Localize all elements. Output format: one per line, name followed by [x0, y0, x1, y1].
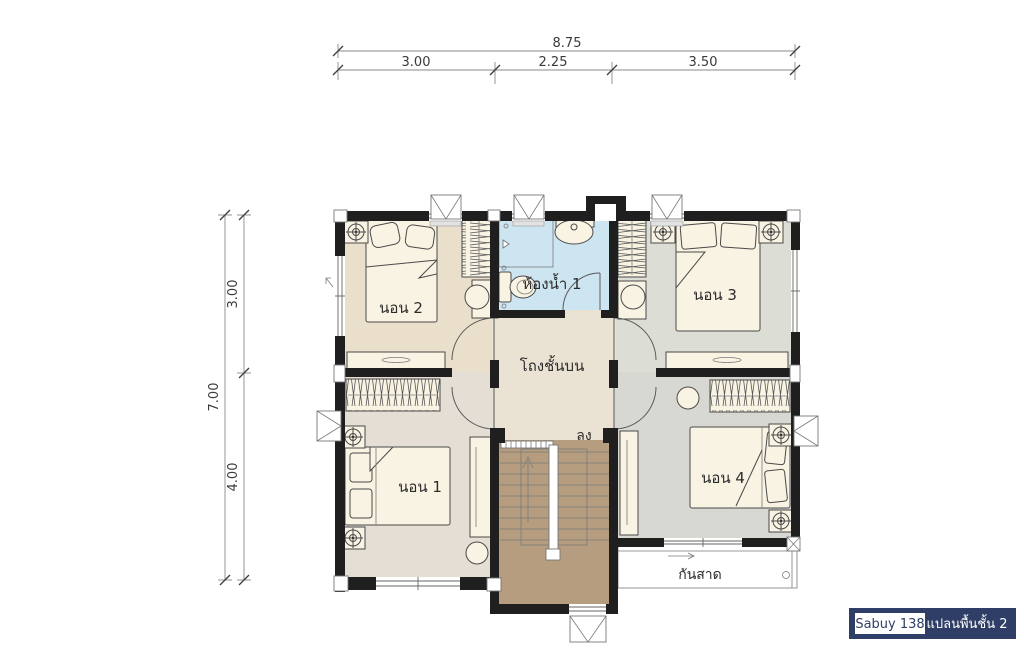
direction-arrow-icon: [668, 553, 694, 559]
vent-icon: [794, 416, 818, 446]
bathroom1-floor: [494, 215, 614, 315]
hall-floor: [492, 310, 616, 448]
desk: [620, 431, 638, 535]
bedroom1-label: นอน 1: [398, 478, 442, 496]
toilet-tank: [499, 272, 511, 302]
dim-top-seg1: 3.00: [402, 55, 431, 70]
dim-left-seg2: 4.00: [226, 463, 241, 492]
stool: [466, 542, 488, 564]
bathroom1-label: ห้องน้ำ 1: [522, 273, 581, 293]
pillow: [350, 453, 372, 482]
window: [335, 256, 345, 336]
vent-icon: [652, 195, 682, 219]
stair-newel: [546, 549, 560, 560]
window: [664, 538, 742, 547]
door-knob-icon: [783, 572, 790, 579]
floor-plan-page: นอน 2 ห้องน้ำ 1 นอน 3 โถงชั้นบน นอน 1 นอ…: [0, 0, 1024, 664]
stool: [621, 285, 645, 309]
dim-left-seg1: 3.00: [226, 280, 241, 309]
ceiling-fan-icon: [769, 424, 793, 446]
bedroom2-label: นอน 2: [379, 299, 423, 317]
stairs-down-label: ลง: [576, 428, 591, 444]
window: [569, 604, 606, 614]
side-table: [677, 387, 699, 409]
pillow: [405, 224, 436, 250]
bedroom3-label: นอน 3: [693, 286, 737, 304]
vent-icon: [514, 195, 544, 219]
vent-icon: [317, 411, 341, 441]
corner-x-post: [787, 537, 800, 551]
pillow: [350, 489, 372, 518]
pillow: [764, 469, 787, 503]
stool: [465, 285, 489, 309]
pillow: [680, 222, 717, 249]
dim-left-total: 7.00: [207, 383, 222, 412]
brand-badge: Sabuy 138 แปลนพื้นชั้น 2: [849, 608, 1016, 639]
dimension-top: 8.75 3.00 2.25 3.50: [333, 36, 800, 84]
badge-plan-label: แปลนพื้นชั้น 2: [926, 614, 1007, 632]
window-arrow-icon: [326, 278, 333, 287]
ceiling-fan-icon: [344, 221, 368, 243]
dim-top-seg3: 3.50: [689, 55, 718, 70]
floor-plan-drawing: นอน 2 ห้องน้ำ 1 นอน 3 โถงชั้นบน นอน 1 นอ…: [0, 0, 1024, 664]
bedroom4-label: นอน 4: [701, 469, 745, 487]
hall-label: โถงชั้นบน: [520, 355, 585, 375]
dim-top-seg2: 2.25: [539, 55, 568, 70]
window: [376, 577, 460, 590]
dim-top-total: 8.75: [553, 36, 582, 51]
stair-railing: [549, 445, 558, 551]
badge-model-label: Sabuy 138: [855, 617, 924, 632]
ceiling-fan-icon: [759, 221, 783, 243]
vent-icon: [431, 195, 461, 219]
vent-icon: [570, 616, 606, 642]
awning-label: กันสาด: [678, 567, 722, 583]
window: [791, 250, 800, 332]
dresser: [347, 352, 445, 369]
desk: [470, 437, 492, 537]
ceiling-fan-icon: [769, 510, 793, 532]
stair-top-balustrade: [501, 441, 553, 448]
pillow: [720, 223, 757, 249]
dresser: [666, 352, 788, 369]
dimension-left: 7.00 3.00 4.00: [207, 210, 251, 585]
